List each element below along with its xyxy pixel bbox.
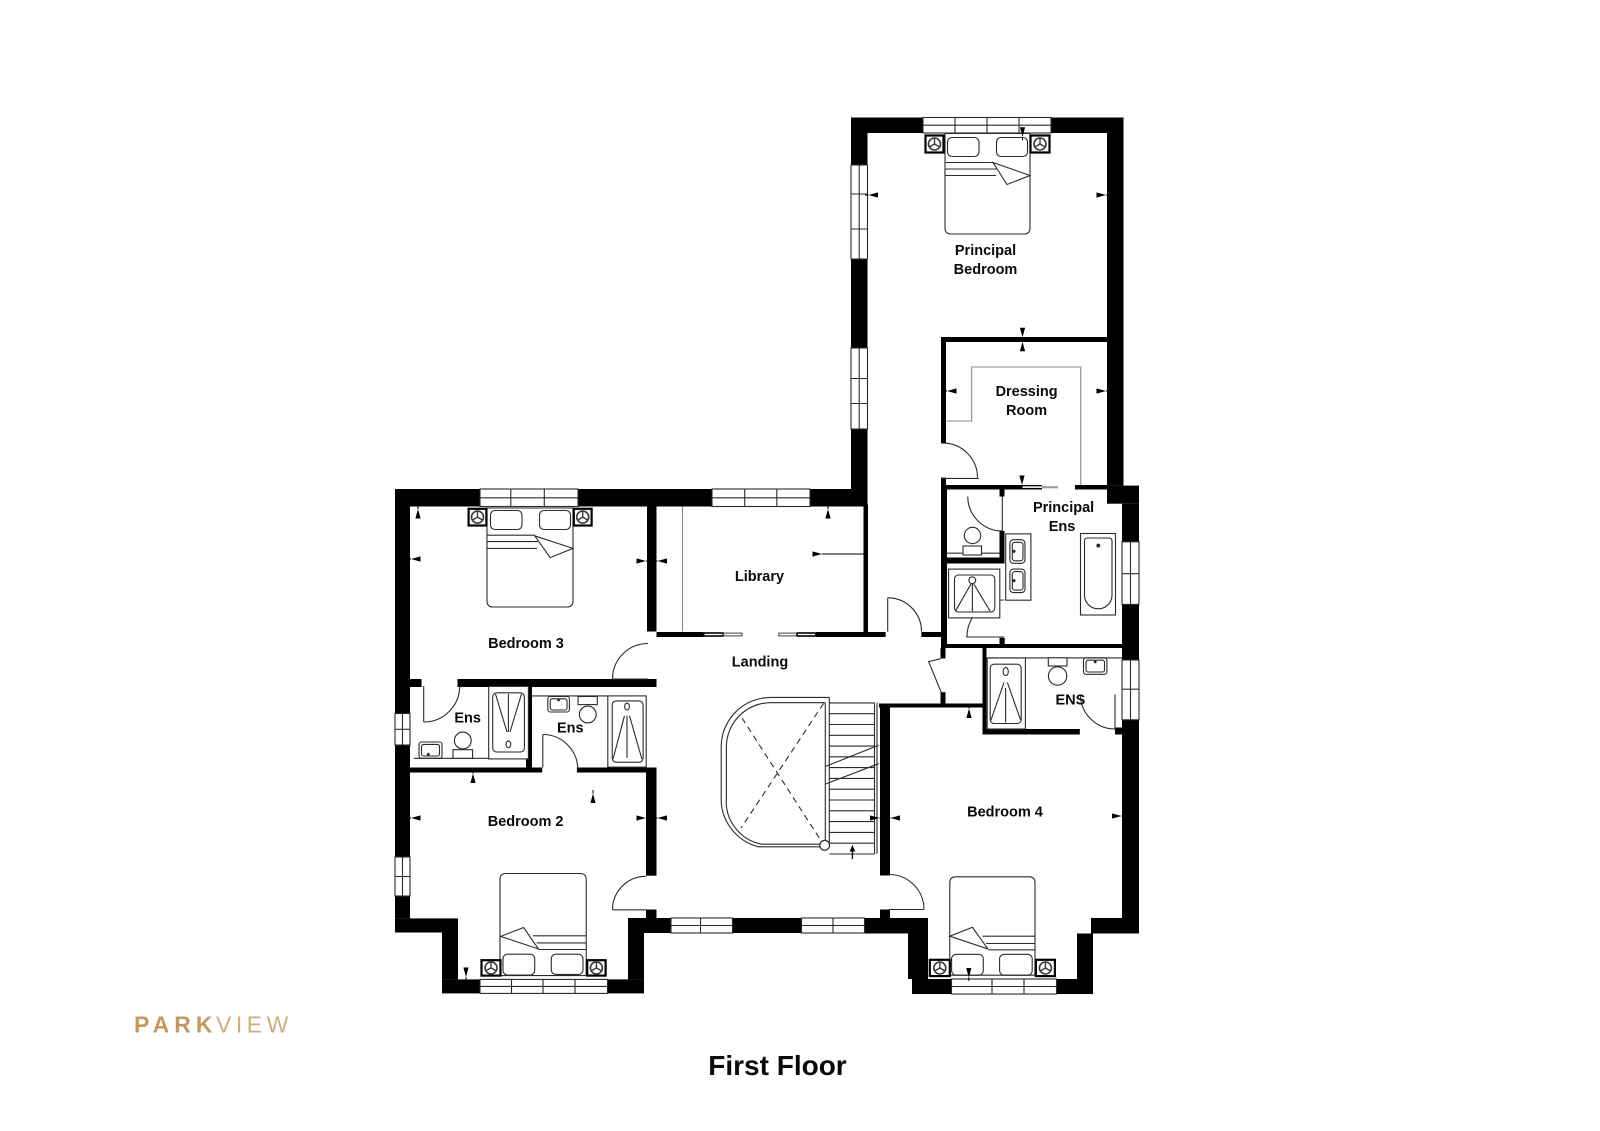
svg-text:Room: Room: [1006, 403, 1047, 419]
svg-text:Landing: Landing: [732, 655, 788, 671]
svg-text:Ens: Ens: [454, 711, 481, 727]
svg-text:First Floor: First Floor: [708, 1050, 847, 1081]
svg-text:Principal: Principal: [955, 243, 1016, 259]
svg-text:PARK: PARK: [134, 1012, 217, 1038]
svg-text:Bedroom: Bedroom: [954, 262, 1018, 278]
svg-text:Library: Library: [735, 569, 784, 585]
svg-text:Principal: Principal: [1033, 500, 1094, 516]
svg-text:Bedroom 2: Bedroom 2: [488, 814, 564, 830]
svg-text:Ens: Ens: [557, 720, 584, 736]
svg-text:VIEW: VIEW: [216, 1012, 293, 1038]
svg-text:ENS: ENS: [1055, 693, 1085, 709]
svg-text:Dressing: Dressing: [996, 384, 1058, 400]
svg-text:Bedroom 4: Bedroom 4: [967, 805, 1043, 821]
svg-text:Ens: Ens: [1049, 519, 1076, 535]
svg-text:Bedroom 3: Bedroom 3: [488, 636, 564, 652]
